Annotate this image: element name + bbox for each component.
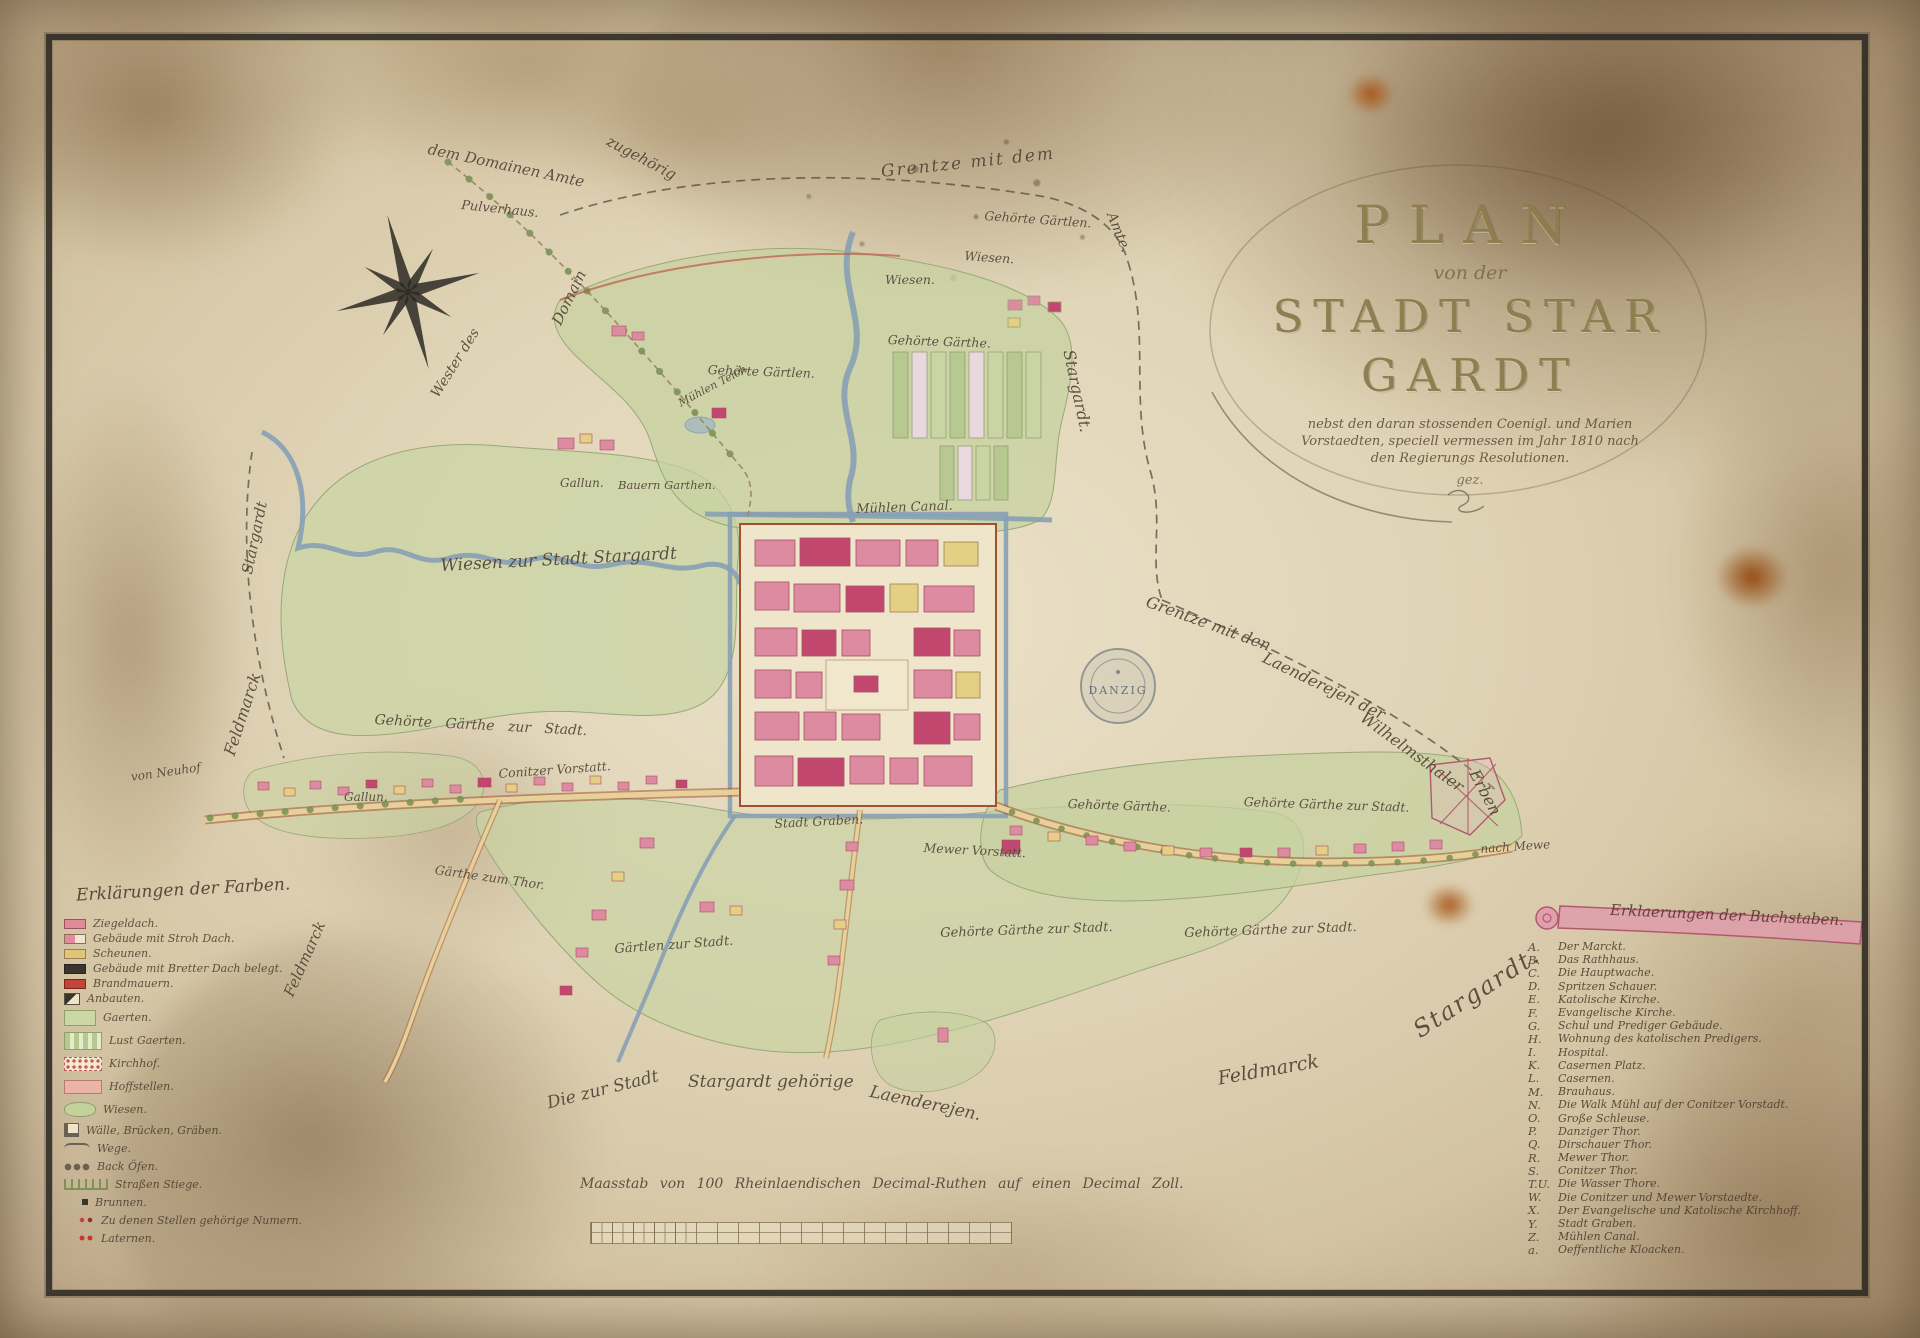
- color-legend-row: Laternen.: [64, 1229, 324, 1247]
- letter-legend-row: G.Schul und Prediger Gebäude.: [1528, 1019, 1858, 1032]
- legend-letter-label: Hospital.: [1558, 1046, 1608, 1059]
- color-legend-list: Ziegeldach.Gebäude mit Stroh Dach.Scheun…: [64, 916, 324, 1247]
- scale-ruler-subdivisions: [591, 1223, 696, 1243]
- swatch-green-plots: [64, 1032, 102, 1050]
- legend-letter: Q.: [1528, 1137, 1558, 1151]
- color-legend-row: Straßen Stiege.: [64, 1175, 324, 1193]
- map-signature: gez.: [1240, 473, 1700, 488]
- map-canvas: DANZIG PLAN von der STADT STAR GARDT neb…: [0, 0, 1920, 1338]
- swatch-green-light: [64, 1010, 96, 1026]
- color-legend-row: Kirchhof.: [64, 1052, 324, 1075]
- color-legend-row: Back Öfen.: [64, 1157, 324, 1175]
- legend-letter: Z.: [1528, 1230, 1558, 1244]
- letter-legend-row: P.Danziger Thor.: [1528, 1125, 1858, 1138]
- swatch-roof-straw: [64, 949, 86, 959]
- color-legend-label: Zu denen Stellen gehörige Numern.: [101, 1214, 302, 1227]
- legend-letter: N.: [1528, 1098, 1558, 1112]
- legend-letter: R.: [1528, 1151, 1558, 1165]
- color-legend-label: Ziegeldach.: [93, 917, 158, 930]
- map-subtitle-line2: Vorstaedten, speciell vermessen im Jahr …: [1240, 433, 1700, 450]
- color-legend-label: Laternen.: [101, 1232, 155, 1245]
- legend-letter-label: Dirschauer Thor.: [1558, 1138, 1652, 1151]
- legend-letter-label: Die Walk Mühl auf der Conitzer Vorstadt.: [1558, 1098, 1788, 1111]
- legend-letter: M.: [1528, 1085, 1558, 1099]
- color-legend-row: Hoffstellen.: [64, 1075, 324, 1098]
- letter-legend-row: N.Die Walk Mühl auf der Conitzer Vorstad…: [1528, 1098, 1858, 1111]
- letter-legend-row: X.Der Evangelische und Katolische Kirchh…: [1528, 1204, 1858, 1217]
- legend-letter-label: Brauhaus.: [1558, 1085, 1615, 1098]
- legend-letter-label: Der Marckt.: [1558, 940, 1626, 953]
- legend-letter: X.: [1528, 1203, 1558, 1217]
- oven-icon: [64, 1161, 90, 1171]
- letter-legend-row: H.Wohnung des katolischen Predigers.: [1528, 1032, 1858, 1045]
- legend-letter: W.: [1528, 1190, 1558, 1204]
- legend-letter-label: Die Wasser Thore.: [1558, 1177, 1660, 1190]
- color-legend-label: Wiesen.: [103, 1103, 147, 1116]
- color-legend-label: Brandmauern.: [93, 977, 173, 990]
- map-title-von-der: von der: [1240, 262, 1700, 284]
- letter-legend-row: A.Der Marckt.: [1528, 940, 1858, 953]
- color-legend-row: Gebäude mit Bretter Dach belegt.: [64, 961, 324, 976]
- letter-legend-row: D.Spritzen Schauer.: [1528, 980, 1858, 993]
- legend-letter: D.: [1528, 979, 1558, 993]
- color-legend-row: Brunnen.: [64, 1193, 324, 1211]
- legend-letter-label: Oeffentliche Kloacken.: [1558, 1243, 1684, 1256]
- letter-legend-row: Y.Stadt Graben.: [1528, 1217, 1858, 1230]
- legend-letter: P.: [1528, 1124, 1558, 1138]
- legend-letter: O.: [1528, 1111, 1558, 1125]
- letter-legend-row: a.Oeffentliche Kloacken.: [1528, 1243, 1858, 1256]
- legend-letter: S.: [1528, 1164, 1558, 1178]
- legend-letter-label: Wohnung des katolischen Predigers.: [1558, 1032, 1762, 1045]
- legend-letter: K.: [1528, 1058, 1558, 1072]
- legend-letter: L.: [1528, 1071, 1558, 1085]
- number-icon: [78, 1216, 94, 1224]
- legend-letter: T.U.: [1528, 1177, 1558, 1191]
- map-label: Bauern Garthen.: [618, 478, 716, 492]
- color-legend-label: Scheunen.: [93, 947, 152, 960]
- legend-letter: F.: [1528, 1006, 1558, 1020]
- letter-legend-row: O.Große Schleuse.: [1528, 1111, 1858, 1124]
- color-legend-label: Wege.: [97, 1142, 131, 1155]
- legend-letter-label: Mewer Thor.: [1558, 1151, 1629, 1164]
- legend-letter-label: Die Hauptwache.: [1558, 966, 1654, 979]
- legend-letter: E.: [1528, 992, 1558, 1006]
- swatch-roof-tile: [64, 919, 86, 929]
- map-subtitle-line3: den Regierungs Resolutionen.: [1240, 450, 1700, 467]
- letter-legend-list: A.Der Marckt.B.Das Rathhaus.C.Die Hauptw…: [1528, 940, 1858, 1257]
- letter-legend-row: L.Casernen.: [1528, 1072, 1858, 1085]
- letter-legend-row: R.Mewer Thor.: [1528, 1151, 1858, 1164]
- swatch-pink-plain: [64, 1080, 102, 1094]
- color-legend-label: Anbauten.: [87, 992, 144, 1005]
- legend-letter: a.: [1528, 1243, 1558, 1257]
- map-label: Wiesen.: [885, 272, 935, 287]
- letter-legend-row: Q.Dirschauer Thor.: [1528, 1138, 1858, 1151]
- letter-legend-row: M.Brauhaus.: [1528, 1085, 1858, 1098]
- map-label: Stargardt gehörige: [688, 1072, 854, 1092]
- map-subtitle-line1: nebst den daran stossenden Coenigl. und …: [1240, 416, 1700, 433]
- swatch-roof-half: [64, 934, 86, 944]
- map-title-gardt: GARDT: [1240, 349, 1700, 402]
- color-legend-label: Kirchhof.: [109, 1057, 160, 1070]
- swatch-brick-red: [64, 979, 86, 989]
- legend-letter-label: Spritzen Schauer.: [1558, 980, 1657, 993]
- wall-icon: [64, 1123, 79, 1137]
- path-icon: [64, 1143, 90, 1154]
- legend-letter: G.: [1528, 1019, 1558, 1033]
- map-title-plan: PLAN: [1240, 196, 1700, 256]
- swatch-red-dotted: [64, 1057, 102, 1071]
- swatch-building-black: [64, 964, 86, 974]
- scale-ruler: [590, 1222, 1012, 1244]
- color-legend-label: Gebäude mit Stroh Dach.: [93, 932, 234, 945]
- letter-legend-row: C.Die Hauptwache.: [1528, 966, 1858, 979]
- legend-letter-label: Casernen.: [1558, 1072, 1615, 1085]
- legend-letter-label: Das Rathhaus.: [1558, 953, 1639, 966]
- swatch-corner-black: [64, 993, 80, 1005]
- legend-letter: I.: [1528, 1045, 1558, 1059]
- lantern-icon: [78, 1234, 94, 1242]
- legend-letter-label: Conitzer Thor.: [1558, 1164, 1638, 1177]
- letter-legend-row: W.Die Conitzer und Mewer Vorstaedte.: [1528, 1191, 1858, 1204]
- legend-letter: Y.: [1528, 1217, 1558, 1231]
- legend-letter: H.: [1528, 1032, 1558, 1046]
- color-legend-row: Lust Gaerten.: [64, 1029, 324, 1052]
- color-legend-label: Brunnen.: [95, 1196, 147, 1209]
- color-legend-row: Wege.: [64, 1139, 324, 1157]
- letter-legend-row: K.Casernen Platz.: [1528, 1059, 1858, 1072]
- color-legend-row: Ziegeldach.: [64, 916, 324, 931]
- letter-legend-row: E.Katolische Kirche.: [1528, 993, 1858, 1006]
- color-legend-label: Straßen Stiege.: [115, 1178, 202, 1191]
- letter-legend-row: B.Das Rathhaus.: [1528, 953, 1858, 966]
- map-label: Gallun.: [560, 476, 604, 490]
- color-legend-row: Zu denen Stellen gehörige Numern.: [64, 1211, 324, 1229]
- legend-letter-label: Katolische Kirche.: [1558, 993, 1660, 1006]
- title-cartouche: PLAN von der STADT STAR GARDT nebst den …: [1240, 196, 1700, 488]
- color-legend-label: Gaerten.: [103, 1011, 152, 1024]
- scale-caption: Maasstab von 100 Rheinlaendischen Decima…: [580, 1176, 1184, 1192]
- color-legend-row: Gebäude mit Stroh Dach.: [64, 931, 324, 946]
- fence-icon: [64, 1179, 108, 1190]
- legend-letter-label: Danziger Thor.: [1558, 1125, 1641, 1138]
- color-legend-row: Wälle, Brücken, Gräben.: [64, 1121, 324, 1139]
- swatch-green-blob: [64, 1102, 96, 1117]
- letter-legend-row: F.Evangelische Kirche.: [1528, 1006, 1858, 1019]
- legend-letter-label: Die Conitzer und Mewer Vorstaedte.: [1558, 1191, 1762, 1204]
- legend-letter-label: Stadt Graben.: [1558, 1217, 1636, 1230]
- legend-letter-label: Evangelische Kirche.: [1558, 1006, 1676, 1019]
- legend-letter-label: Casernen Platz.: [1558, 1059, 1646, 1072]
- letter-legend-row: S.Conitzer Thor.: [1528, 1164, 1858, 1177]
- color-legend-row: Scheunen.: [64, 946, 324, 961]
- color-legend-label: Wälle, Brücken, Gräben.: [86, 1124, 222, 1137]
- letter-legend-row: T.U.Die Wasser Thore.: [1528, 1177, 1858, 1190]
- legend-letter-label: Mühlen Canal.: [1558, 1230, 1640, 1243]
- color-legend-row: Gaerten.: [64, 1006, 324, 1029]
- letter-legend-row: Z.Mühlen Canal.: [1528, 1230, 1858, 1243]
- color-legend-label: Gebäude mit Bretter Dach belegt.: [93, 962, 283, 975]
- color-legend-label: Back Öfen.: [97, 1160, 158, 1173]
- legend-letter-label: Der Evangelische und Katolische Kirchhof…: [1558, 1204, 1801, 1217]
- letter-legend-row: I.Hospital.: [1528, 1046, 1858, 1059]
- map-label: Gallun.: [344, 790, 388, 804]
- well-icon: [82, 1199, 88, 1205]
- color-legend-row: Wiesen.: [64, 1098, 324, 1121]
- legend-letter-label: Schul und Prediger Gebäude.: [1558, 1019, 1723, 1032]
- color-legend-label: Lust Gaerten.: [109, 1034, 186, 1047]
- color-legend-label: Hoffstellen.: [109, 1080, 174, 1093]
- legend-letter-label: Große Schleuse.: [1558, 1112, 1650, 1125]
- map-title-stadt: STADT STAR: [1240, 290, 1700, 343]
